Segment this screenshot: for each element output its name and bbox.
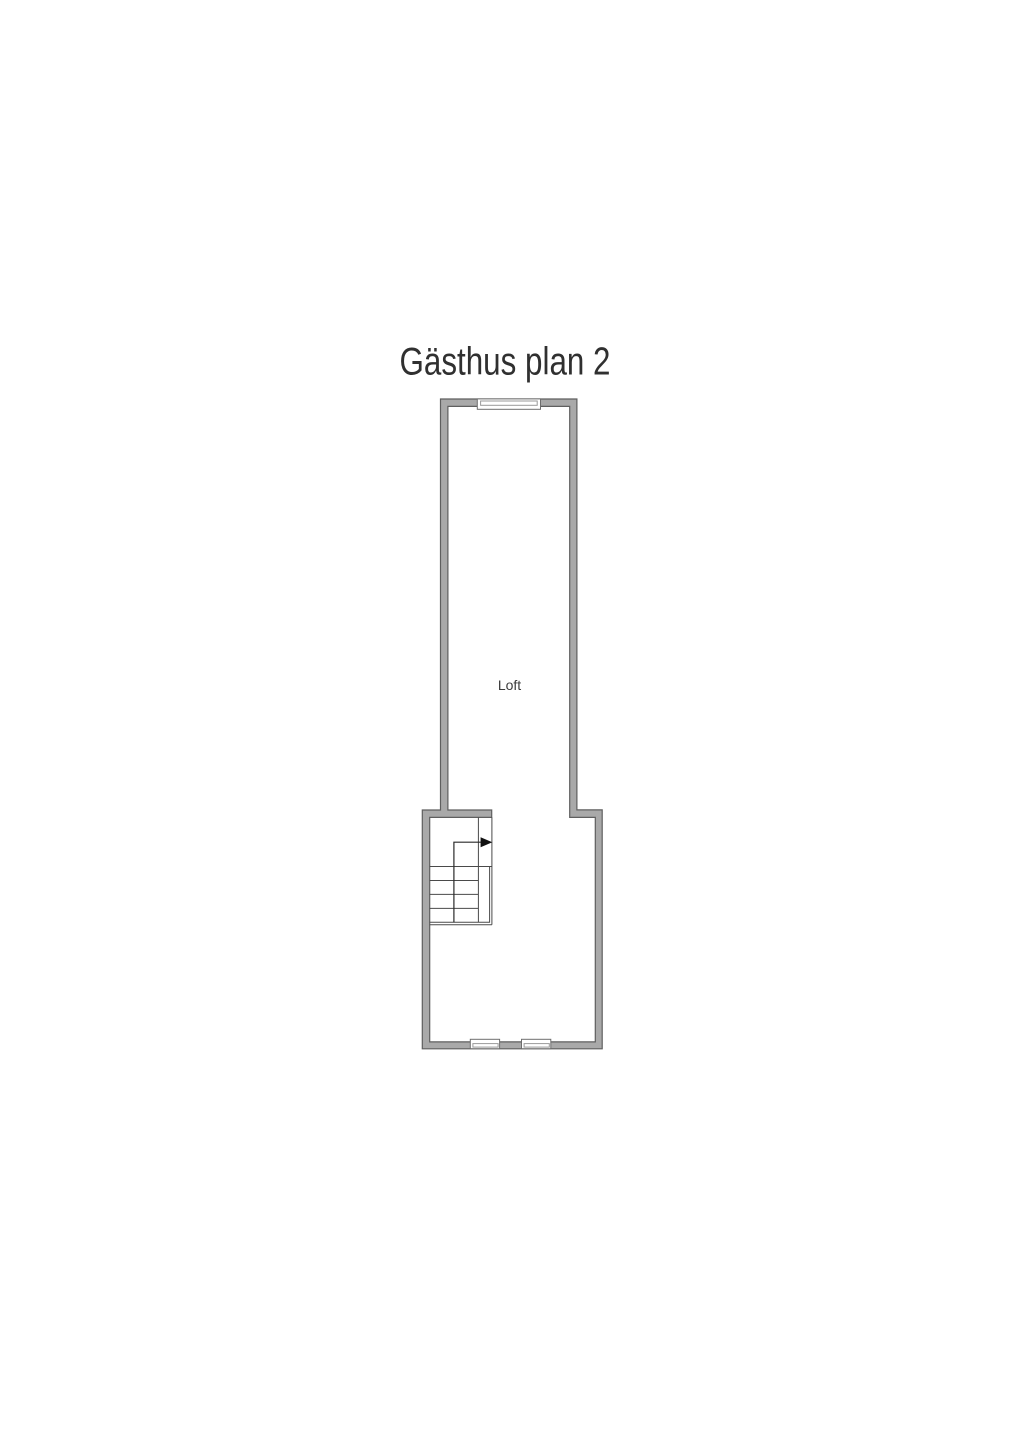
svg-text:Gästhus plan 2: Gästhus plan 2 <box>400 341 611 384</box>
svg-text:Loft: Loft <box>498 677 521 693</box>
